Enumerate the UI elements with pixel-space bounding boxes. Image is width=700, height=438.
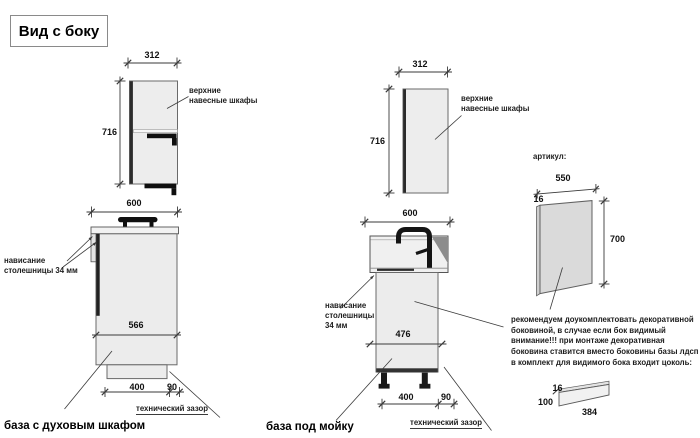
label-techgap-mid: технический зазор <box>410 418 482 428</box>
label-overhang-mid: нависание столешницы 34 мм <box>325 301 377 331</box>
page-title: Вид с боку <box>19 23 100 40</box>
label-upper-cabinets-left: верхние навесные шкафы <box>189 86 259 106</box>
drawing-linework <box>0 0 700 438</box>
label-techgap-left: технический зазор <box>136 404 208 414</box>
note-line-1: рекомендуем доукомплектовать декоративно… <box>511 315 694 324</box>
dim-716-left: 716 <box>92 127 117 137</box>
dim-476: 476 <box>383 329 423 339</box>
dim-400-mid: 400 <box>386 392 426 402</box>
oven-base-drawing <box>91 217 179 379</box>
side-view-drawing: Вид с боку 312 716 верхние навесные шкаф… <box>0 0 700 438</box>
dim-566: 566 <box>116 320 156 330</box>
decor-panel-drawing <box>537 201 593 296</box>
oven-handle-icon <box>118 217 158 228</box>
caption-sink-base: база под мойку <box>266 421 354 433</box>
note-line-4-warning: боковина ставится вместо боковины базы л… <box>511 347 699 356</box>
note-line-2: боковиной, в случае если бок видимый <box>511 326 666 335</box>
dim-716-mid-lines <box>384 85 395 198</box>
label-overhang-left: нависание столешницы 34 мм <box>4 256 82 276</box>
leader-caption-oven <box>65 351 113 409</box>
cabinet-legs-icon <box>379 373 431 389</box>
dim-100-plinth: 100 <box>534 397 553 407</box>
dim-312-left: 312 <box>132 50 172 60</box>
caption-oven-base: база с духовым шкафом <box>4 420 145 432</box>
wall-cabinet-mid-drawing <box>403 89 448 193</box>
note-line-5: в комплект для видимого бока входит цоко… <box>511 358 692 367</box>
dim-400-left: 400 <box>117 382 157 392</box>
dim-700: 700 <box>604 234 631 244</box>
sink-base-drawing <box>370 230 448 389</box>
title-box: Вид с боку <box>10 15 108 47</box>
label-techgap-mid-text: технический зазор <box>410 418 482 429</box>
dim-600-left-lines <box>87 207 183 218</box>
dim-600-mid: 600 <box>390 208 430 218</box>
label-article: артикул: <box>533 152 566 162</box>
dim-550: 550 <box>543 173 583 183</box>
dim-312-mid: 312 <box>400 59 440 69</box>
dim-90-left: 90 <box>161 382 183 392</box>
note-line-3-warning: внимание!!! при монтаже декоративная <box>511 336 665 345</box>
dim-16-plinth: 16 <box>549 383 566 393</box>
label-upper-cabinets-mid: верхние навесные шкафы <box>461 94 531 114</box>
dim-600-left: 600 <box>114 198 154 208</box>
dim-16-panel: 16 <box>530 194 547 204</box>
dim-384-plinth: 384 <box>577 407 602 417</box>
dim-600-mid-lines <box>360 217 455 228</box>
label-techgap-left-text: технический зазор <box>136 404 208 415</box>
wall-cabinet-left-drawing <box>130 81 178 195</box>
dim-90-mid: 90 <box>435 392 457 402</box>
leader-caption-sink <box>336 359 392 421</box>
dim-716-mid: 716 <box>360 136 385 146</box>
